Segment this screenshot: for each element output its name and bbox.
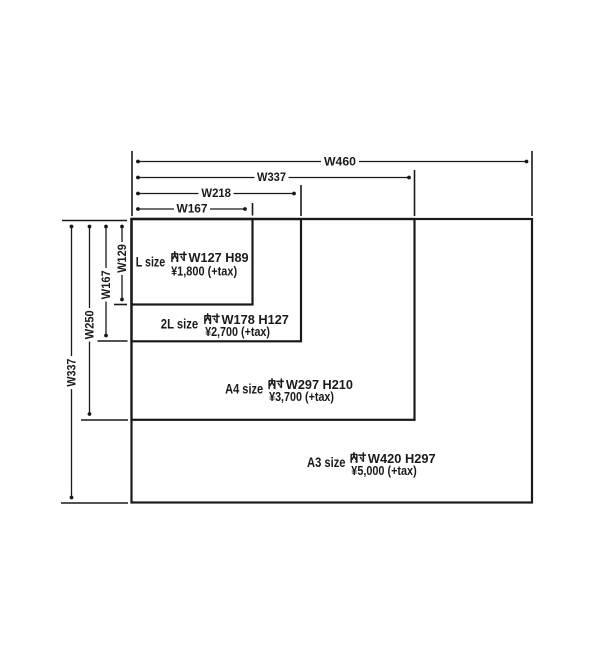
svg-text:A4 size: A4 size xyxy=(225,382,263,397)
svg-text:¥5,000 (+tax): ¥5,000 (+tax) xyxy=(351,463,416,478)
svg-text:W167: W167 xyxy=(99,270,113,299)
svg-text:¥3,700 (+tax): ¥3,700 (+tax) xyxy=(269,389,334,404)
svg-text:W337: W337 xyxy=(257,170,286,184)
svg-text:W337: W337 xyxy=(64,358,78,386)
svg-text:L size: L size xyxy=(136,255,166,270)
svg-text:A3 size: A3 size xyxy=(307,455,346,470)
svg-text:2L size: 2L size xyxy=(161,317,199,332)
svg-text:W460: W460 xyxy=(324,155,356,169)
svg-text:W250: W250 xyxy=(82,310,96,339)
svg-text:W129: W129 xyxy=(115,244,129,273)
svg-text:W218: W218 xyxy=(201,186,231,200)
svg-text:¥2,700 (+tax): ¥2,700 (+tax) xyxy=(205,324,270,339)
svg-text:¥1,800 (+tax): ¥1,800 (+tax) xyxy=(171,263,237,278)
svg-text:W167: W167 xyxy=(177,201,208,215)
